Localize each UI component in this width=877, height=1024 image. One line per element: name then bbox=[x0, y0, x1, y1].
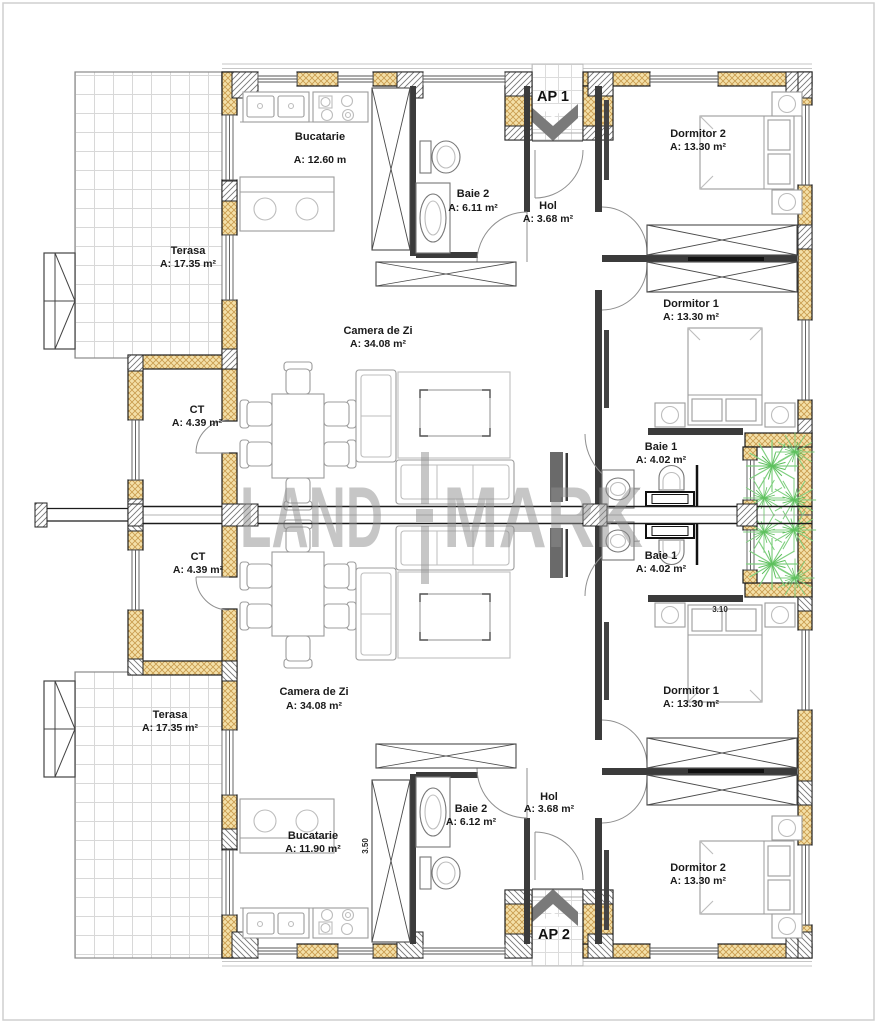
kitchen-sink bbox=[243, 92, 309, 122]
room-area: A: 3.68 m² bbox=[523, 213, 574, 225]
toilet bbox=[659, 465, 684, 490]
toilet bbox=[420, 141, 460, 173]
watermark-right: MARK bbox=[443, 470, 643, 566]
room-name: Baie 2 bbox=[455, 803, 487, 815]
room-label-ap1-dormitor2: Dormitor 2 A: 13.30 m² bbox=[670, 128, 727, 153]
room-area: A: 13.30 m² bbox=[670, 141, 727, 153]
tv-unit bbox=[604, 100, 609, 180]
room-area: A: 13.30 m² bbox=[663, 311, 720, 323]
room-label-ap1-dormitor1: Dormitor 1 A: 13.30 m² bbox=[663, 298, 720, 323]
entrance-label-ap2: AP 2 bbox=[538, 927, 570, 943]
dimension-310: 3.10 bbox=[712, 605, 728, 614]
chair bbox=[324, 400, 356, 428]
room-area: A: 34.08 m² bbox=[286, 700, 343, 712]
room-label-ap2-dormitor1: Dormitor 1 A: 13.30 m² bbox=[663, 685, 720, 710]
room-area: A: 4.39 m² bbox=[173, 564, 224, 576]
room-name: Dormitor 2 bbox=[670, 128, 726, 140]
nightstand bbox=[772, 190, 802, 214]
room-name: Camera de Zi bbox=[343, 325, 412, 337]
room-name: CT bbox=[190, 404, 205, 416]
room-name: Terasa bbox=[153, 709, 189, 721]
room-name: Bucatarie bbox=[288, 830, 338, 842]
nightstand bbox=[772, 92, 802, 116]
room-area: A: 12.60 m bbox=[294, 154, 347, 166]
room-name: Baie 1 bbox=[645, 441, 677, 453]
kitchen-island bbox=[240, 177, 334, 231]
chair bbox=[284, 362, 312, 394]
tv-unit bbox=[604, 330, 609, 408]
double-bed bbox=[688, 328, 762, 425]
bathroom-vanity bbox=[416, 183, 450, 253]
watermark-left: LAND bbox=[240, 470, 383, 566]
room-area: A: 13.30 m² bbox=[663, 698, 720, 710]
nightstand bbox=[765, 403, 795, 427]
room-name: Dormitor 1 bbox=[663, 685, 719, 697]
dimension-350: 3.50 bbox=[361, 838, 370, 854]
room-name: Bucatarie bbox=[295, 131, 345, 143]
room-area: A: 4.02 m² bbox=[636, 454, 687, 466]
room-area: A: 3.68 m² bbox=[524, 803, 575, 815]
chair bbox=[240, 440, 272, 468]
room-name: Dormitor 1 bbox=[663, 298, 719, 310]
room-area: A: 17.35 m² bbox=[160, 258, 217, 270]
room-area: A: 4.02 m² bbox=[636, 563, 687, 575]
room-area: A: 17.35 m² bbox=[142, 722, 199, 734]
room-name: Camera de Zi bbox=[279, 686, 348, 698]
room-area: A: 4.39 m² bbox=[172, 417, 223, 429]
kitchen-stove bbox=[313, 92, 368, 122]
room-area: A: 6.11 m² bbox=[448, 202, 498, 214]
room-area: A: 11.90 m² bbox=[285, 843, 341, 855]
room-name: CT bbox=[191, 551, 206, 563]
nightstand bbox=[655, 403, 685, 427]
room-area: A: 6.12 m² bbox=[446, 816, 497, 828]
room-label-ap2-bucatarie: Bucatarie A: 11.90 m² bbox=[285, 830, 341, 855]
room-name: Hol bbox=[539, 200, 557, 212]
coffee-table bbox=[420, 390, 490, 436]
room-area: A: 13.30 m² bbox=[670, 875, 727, 887]
room-label-ap1-camera-de-zi: Camera de Zi A: 34.08 m² bbox=[343, 325, 412, 350]
entrance-label-ap1: AP 1 bbox=[537, 89, 569, 105]
room-name: Dormitor 2 bbox=[670, 862, 726, 874]
room-area: A: 34.08 m² bbox=[350, 338, 407, 350]
room-name: Terasa bbox=[171, 245, 207, 257]
chair bbox=[240, 400, 272, 428]
chair bbox=[324, 440, 356, 468]
room-name: Hol bbox=[540, 791, 558, 803]
floor-plan: LAND MARK Bucatarie A: 12.60 m Baie 2 A:… bbox=[0, 0, 877, 1024]
room-name: Baie 1 bbox=[645, 550, 677, 562]
terrace-stairs bbox=[44, 253, 75, 349]
room-name: Baie 2 bbox=[457, 188, 489, 200]
room-label-ap2-dormitor2: Dormitor 2 A: 13.30 m² bbox=[670, 862, 727, 887]
